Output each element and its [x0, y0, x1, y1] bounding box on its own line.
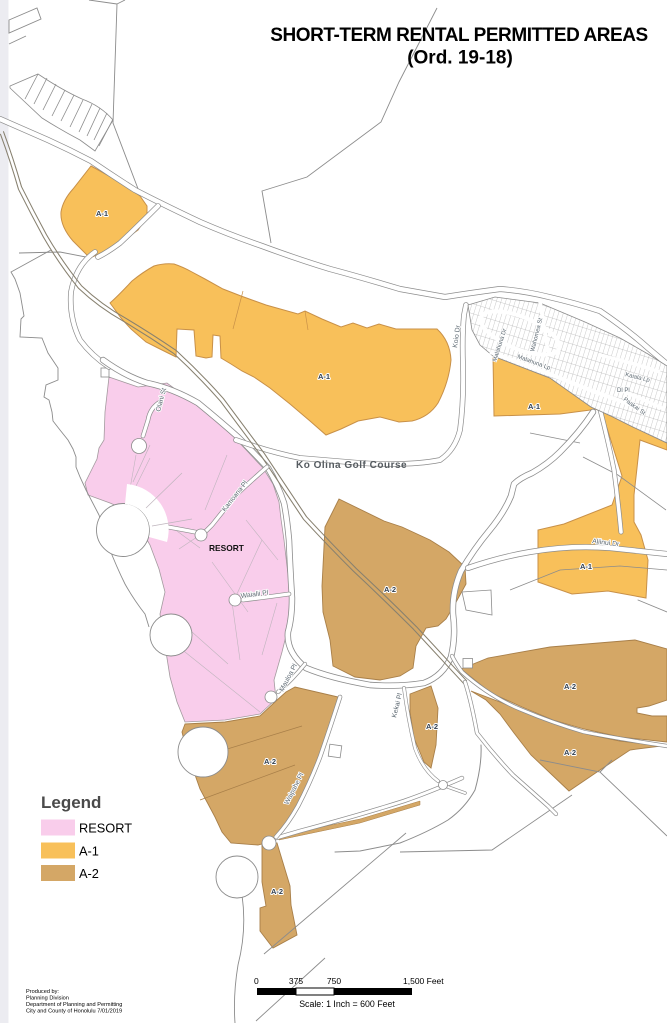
svg-text:A-1: A-1 [79, 844, 99, 859]
svg-text:RESORT: RESORT [209, 543, 245, 553]
svg-text:SHORT-TERM RENTAL PERMITTED AR: SHORT-TERM RENTAL PERMITTED AREAS [270, 25, 647, 46]
svg-text:Planning Division: Planning Division [26, 996, 69, 1002]
svg-text:Dl Pl: Dl Pl [617, 388, 630, 394]
svg-text:City and County of Honolulu 7/: City and County of Honolulu 7/01/2019 [26, 1009, 122, 1015]
svg-text:Scale: 1 Inch = 600 Feet: Scale: 1 Inch = 600 Feet [299, 999, 395, 1009]
svg-text:A-2: A-2 [264, 757, 276, 766]
svg-text:A-2: A-2 [426, 722, 438, 731]
svg-text:A-2: A-2 [564, 682, 576, 691]
svg-text:A-2: A-2 [564, 748, 576, 757]
svg-text:1,500 Feet: 1,500 Feet [403, 976, 444, 986]
svg-text:A-1: A-1 [96, 209, 108, 218]
svg-text:RESORT: RESORT [79, 821, 132, 836]
svg-text:(Ord. 19-18): (Ord. 19-18) [407, 48, 513, 69]
svg-text:A-2: A-2 [271, 887, 283, 896]
svg-text:A-1: A-1 [528, 402, 540, 411]
svg-text:A-2: A-2 [79, 866, 99, 881]
svg-text:Ko Olina Golf Course: Ko Olina Golf Course [296, 460, 407, 471]
svg-text:750: 750 [327, 976, 341, 986]
svg-text:Produced by:: Produced by: [26, 989, 59, 995]
svg-text:A-2: A-2 [384, 585, 396, 594]
svg-text:0: 0 [254, 976, 259, 986]
svg-text:Legend: Legend [41, 793, 101, 812]
svg-text:Department of Planning and Per: Department of Planning and Permitting [26, 1002, 122, 1008]
svg-text:A-1: A-1 [580, 562, 592, 571]
svg-text:375: 375 [289, 976, 303, 986]
svg-text:A-1: A-1 [318, 372, 330, 381]
